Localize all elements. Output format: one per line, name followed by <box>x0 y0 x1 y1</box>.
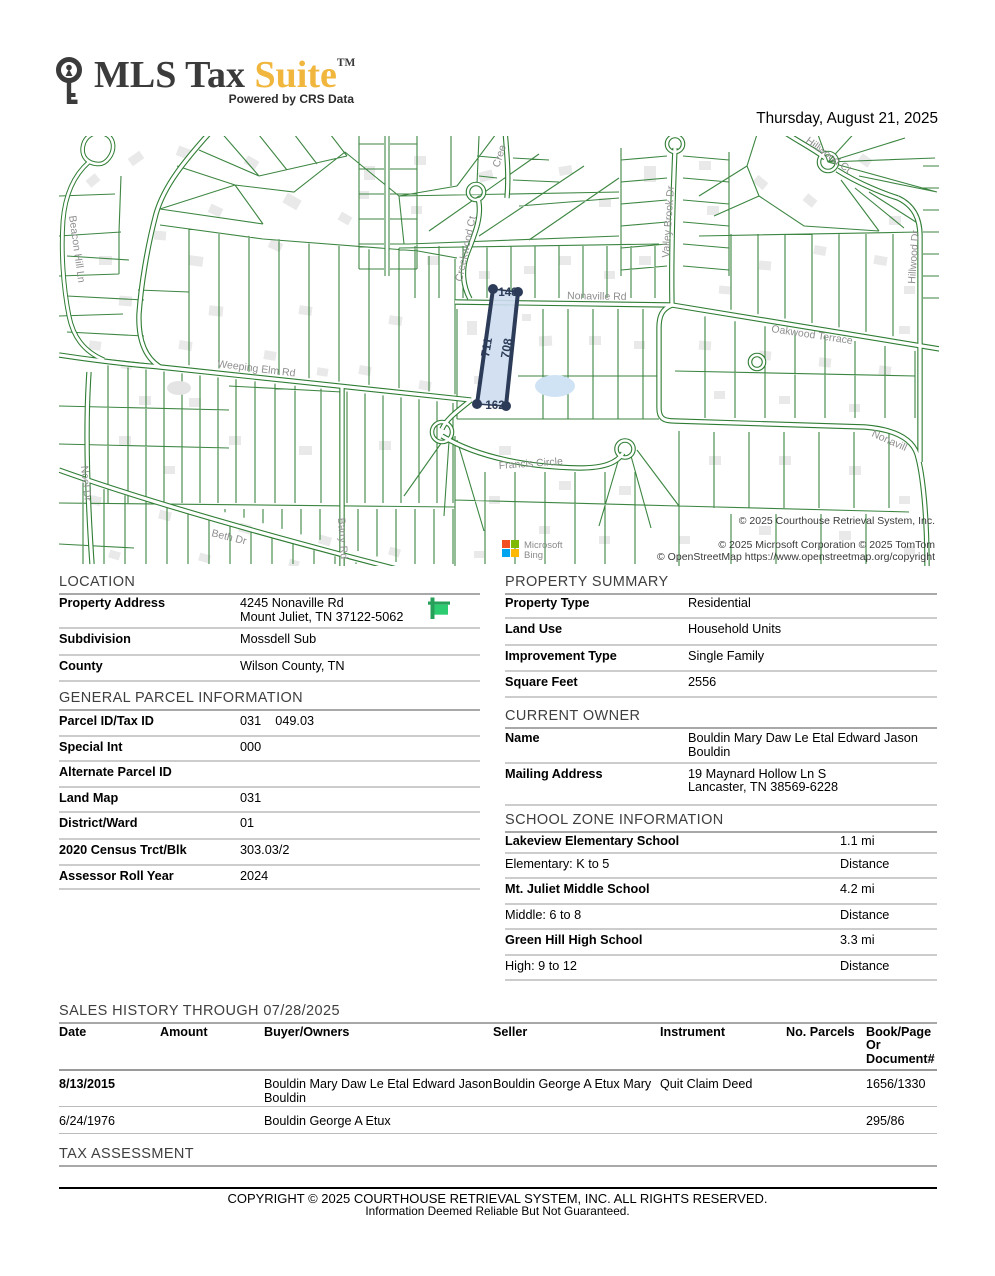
svg-text:Noel Dr: Noel Dr <box>78 465 94 502</box>
svg-text:Beacon Hill Ln: Beacon Hill Ln <box>66 215 87 284</box>
svg-text:© OpenStreetMap https://www.op: © OpenStreetMap https://www.openstreetma… <box>657 551 935 563</box>
svg-text:© 2025 Microsoft Corporation ©: © 2025 Microsoft Corporation © 2025 TomT… <box>718 539 935 551</box>
svg-text:© 2025 Courthouse Retrieval Sy: © 2025 Courthouse Retrieval System, Inc. <box>739 515 935 527</box>
svg-text:Creekwood Ct: Creekwood Ct <box>453 215 479 283</box>
svg-text:162: 162 <box>485 400 504 412</box>
svg-text:Bing: Bing <box>524 550 543 561</box>
svg-text:Nonaville Rd: Nonaville Rd <box>567 290 627 303</box>
svg-text:148: 148 <box>498 287 518 299</box>
